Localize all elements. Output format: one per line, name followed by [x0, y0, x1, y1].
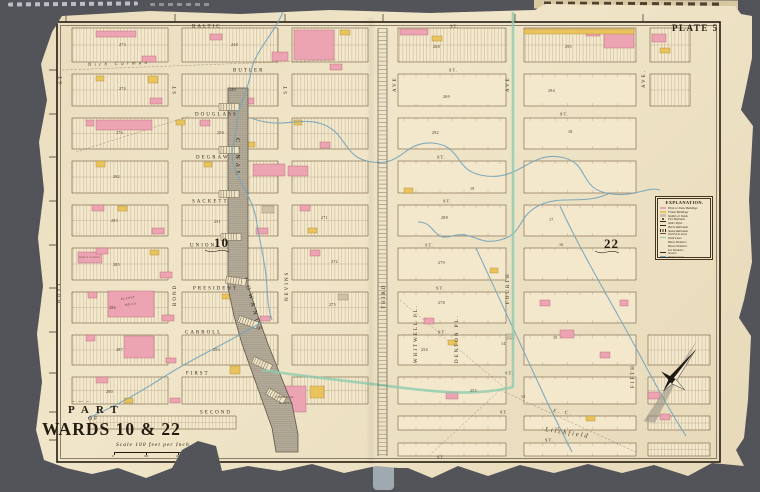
svg-text:285: 285 — [113, 262, 120, 267]
svg-text:HOYT: HOYT — [57, 281, 62, 303]
svg-text:ST.: ST. — [443, 199, 452, 204]
svg-text:269: 269 — [443, 94, 450, 99]
svg-text:ST.: ST. — [438, 330, 447, 335]
svg-text:22: 22 — [604, 236, 619, 251]
svg-text:THIRD: THIRD — [382, 284, 387, 309]
svg-text:CHEMICAL: CHEMICAL — [275, 395, 295, 399]
svg-text:255: 255 — [470, 388, 477, 393]
svg-text:273: 273 — [119, 42, 126, 47]
paper-crease — [366, 18, 376, 464]
svg-text:ST.: ST. — [437, 155, 446, 160]
svg-text:13: 13 — [521, 394, 526, 399]
map-paper: CANALGOWANUSBALTICBUTLERDOUGLASSDEGRAWSA… — [0, 0, 760, 492]
title-part: PART — [68, 404, 217, 416]
svg-text:NEVINS: NEVINS — [285, 271, 290, 301]
svg-text:PUBLIC SCHOOL: PUBLIC SCHOOL — [79, 256, 101, 259]
svg-text:ST.: ST. — [560, 112, 569, 117]
svg-text:271: 271 — [321, 215, 328, 220]
svg-text:294: 294 — [548, 88, 555, 93]
svg-text:254: 254 — [421, 347, 428, 352]
svg-text:ST: ST — [284, 84, 289, 94]
svg-text:ST.: ST. — [436, 286, 445, 291]
scale-text: Scale 100 feet per Inch — [116, 442, 190, 448]
svg-text:276: 276 — [116, 130, 123, 135]
plate-number-label: PLATE 5. — [672, 23, 742, 33]
svg-text:278: 278 — [438, 300, 445, 305]
svg-text:249: 249 — [229, 87, 236, 92]
svg-text:295: 295 — [565, 44, 572, 49]
legend-item-label: Watercourses — [668, 255, 684, 259]
svg-text:253: 253 — [213, 347, 220, 352]
svg-text:AVE: AVE — [393, 76, 398, 92]
title-wards: WARDS 10 & 22 — [42, 422, 217, 437]
legend-title: EXPLANATION. — [660, 200, 709, 205]
svg-text:BALTIC: BALTIC — [192, 25, 222, 30]
map-title-block: ~ — ~ PART OF WARDS 10 & 22 — [42, 401, 217, 437]
svg-text:ST: ST — [173, 84, 178, 94]
top-left-scrawl-fragment — [8, 1, 138, 6]
svg-text:248: 248 — [231, 42, 238, 47]
svg-text:DOUGLASS: DOUGLASS — [195, 113, 238, 118]
svg-text:286: 286 — [109, 305, 116, 310]
svg-text:BOND: BOND — [173, 284, 178, 306]
svg-text:PRESIDENT: PRESIDENT — [193, 287, 238, 292]
svg-text:287: 287 — [116, 347, 123, 352]
svg-text:288: 288 — [441, 215, 448, 220]
svg-text:10: 10 — [214, 235, 229, 250]
explanation-legend: EXPLANATION. Brick or Stone BuildingsFra… — [655, 196, 713, 260]
svg-text:WHITWELL PL.: WHITWELL PL. — [414, 304, 419, 363]
svg-text:ST.: ST. — [545, 438, 554, 443]
legend-items: Brick or Stone BuildingsFrame BuildingsS… — [660, 206, 709, 259]
svg-text:ST.: ST. — [437, 455, 446, 460]
svg-text:275: 275 — [329, 302, 336, 307]
svg-text:UNION: UNION — [190, 244, 216, 249]
svg-text:17: 17 — [549, 217, 554, 222]
svg-text:AVE: AVE — [506, 76, 511, 92]
svg-text:250: 250 — [217, 130, 224, 135]
svg-text:280: 280 — [106, 389, 113, 394]
svg-text:14: 14 — [501, 341, 506, 346]
svg-text:ST.: ST. — [425, 243, 434, 248]
svg-text:FIRST: FIRST — [186, 372, 210, 377]
svg-text:ST.: ST. — [449, 68, 458, 73]
svg-text:BUTLER: BUTLER — [233, 69, 264, 74]
svg-text:251: 251 — [214, 219, 221, 224]
svg-text:FIFTH: FIFTH — [631, 364, 636, 388]
svg-text:282: 282 — [113, 174, 120, 179]
svg-text:SACKETT: SACKETT — [192, 200, 229, 205]
svg-text:AVE.: AVE. — [642, 69, 647, 88]
scale-bar: 0100200300 — [114, 452, 214, 459]
svg-text:ST: ST — [59, 74, 64, 84]
svg-text:FOURTH: FOURTH — [506, 272, 511, 304]
svg-text:283: 283 — [111, 218, 118, 223]
top-left-scrawl-fragment-2 — [150, 3, 210, 6]
svg-text:16: 16 — [559, 242, 564, 247]
svg-text:292: 292 — [432, 130, 439, 135]
svg-text:WORKS: WORKS — [279, 401, 292, 405]
svg-text:ST.: ST. — [450, 24, 459, 29]
svg-text:18: 18 — [568, 129, 573, 134]
svg-text:15: 15 — [553, 335, 558, 340]
svg-text:DENTON PL.: DENTON PL. — [455, 314, 460, 363]
svg-text:279: 279 — [438, 260, 445, 265]
svg-text:DEGRAW: DEGRAW — [196, 156, 230, 161]
svg-text:ST.: ST. — [500, 410, 509, 415]
svg-text:ST.: ST. — [505, 371, 514, 376]
legend-item: Watercourses — [660, 255, 709, 259]
svg-text:272: 272 — [331, 259, 338, 264]
scanned-atlas-page: CANALGOWANUSBALTICBUTLERDOUGLASSDEGRAWSA… — [0, 0, 760, 492]
svg-text:268: 268 — [433, 44, 440, 49]
svg-text:CARROLL: CARROLL — [185, 331, 222, 336]
svg-text:19: 19 — [470, 186, 475, 191]
svg-text:274: 274 — [119, 86, 126, 91]
